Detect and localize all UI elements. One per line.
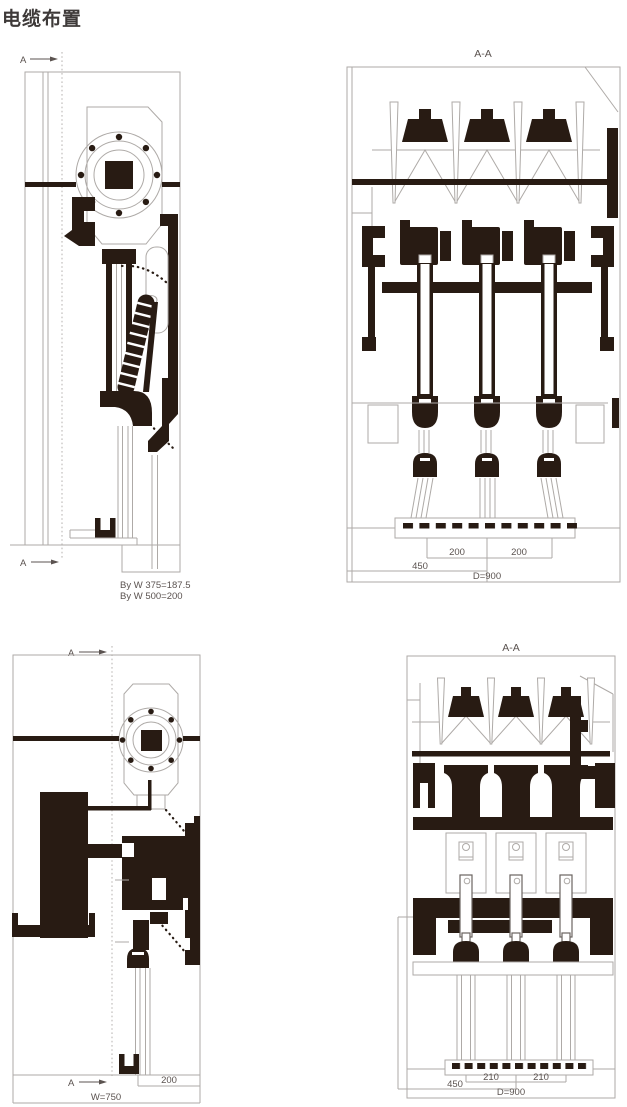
- section-marker-label: A: [68, 648, 75, 659]
- cable-termination: [127, 920, 149, 968]
- dim-depth: D=900: [473, 571, 501, 582]
- section-marker-top: A: [20, 55, 58, 66]
- lead-horizontal: [87, 806, 151, 811]
- contact-block: [524, 220, 575, 428]
- drawing: A: [0, 0, 627, 1107]
- dim-200-right: 200: [511, 547, 527, 558]
- contact-block: [462, 220, 513, 428]
- cable-terminations: [411, 430, 563, 518]
- notes: By W 375=187.5 By W 500=200: [120, 580, 191, 602]
- cable-terminations: [413, 933, 613, 975]
- drive-shaft-bar: [607, 128, 618, 218]
- cable-gland-plate: [347, 518, 620, 538]
- dimension-chain: 200 200 450 D=900: [347, 538, 552, 582]
- section-marker-bottom: A: [68, 1078, 107, 1089]
- phase-pillars: [413, 765, 613, 830]
- pillar-base-bar: [413, 817, 613, 830]
- floor-trench: [122, 545, 180, 572]
- support-box: [576, 405, 604, 443]
- opening-spring: [117, 296, 158, 393]
- busbar-line: [25, 182, 180, 187]
- page: 电缆布置 A: [0, 0, 627, 1107]
- lead-vertical: [148, 780, 152, 810]
- phase-contacts: [400, 220, 575, 428]
- bushing-square: [105, 161, 133, 189]
- dim-200-left: 200: [449, 547, 465, 558]
- insulator-caps: [448, 687, 584, 717]
- section-marker-bottom: A: [20, 558, 59, 569]
- corner-chamfer: [585, 67, 618, 112]
- section-marker-label: A: [20, 558, 27, 569]
- section-marker-label: A: [20, 55, 27, 66]
- dim-450: 450: [412, 561, 428, 572]
- dim-width: W=750: [91, 1092, 121, 1103]
- arrow-icon: [99, 650, 107, 655]
- busbar-line: [13, 736, 200, 741]
- arrow-icon: [50, 57, 58, 62]
- dim-210-left: 210: [483, 1072, 499, 1083]
- bushing-flange: [119, 684, 183, 795]
- section-marker-top: A: [68, 648, 107, 659]
- upper-insulators: [372, 102, 600, 203]
- insulator-caps: [402, 109, 572, 142]
- dim-200: 200: [161, 1075, 177, 1086]
- side-linkage-bar: [168, 214, 178, 378]
- operating-mechanism: [64, 197, 178, 395]
- note-line-2: By W 500=200: [120, 591, 183, 602]
- panel-top-right-section: A-A: [347, 48, 620, 582]
- corner-chamfer: [580, 676, 613, 694]
- cables-to-plate: [411, 478, 563, 518]
- cable-clamp: [70, 518, 137, 545]
- cable-boot: [148, 378, 178, 452]
- contact-block: [400, 220, 451, 428]
- arrow-icon: [99, 1080, 107, 1085]
- dimension-chain: 200 A W=750: [13, 1075, 200, 1103]
- cable-gland-plate: [407, 1060, 615, 1075]
- arrow-icon: [51, 560, 59, 565]
- busbar: [352, 179, 608, 185]
- cable-clamp: [119, 1054, 139, 1074]
- panel-bottom-left-side-view: A: [12, 646, 200, 1103]
- support-box: [368, 405, 398, 443]
- cable-elbow: [100, 391, 152, 426]
- section-label: A-A: [474, 48, 492, 60]
- support-shelf: [413, 962, 613, 975]
- bushing-square: [141, 730, 162, 751]
- dim-depth: D=900: [497, 1087, 525, 1098]
- instrument-box: [12, 792, 95, 938]
- note-line-1: By W 375=187.5: [120, 580, 191, 591]
- dim-450: 450: [447, 1079, 463, 1090]
- section-label: A-A: [502, 642, 520, 654]
- section-marker-label: A: [68, 1078, 75, 1089]
- panel-bottom-right-section: A-A: [398, 642, 615, 1098]
- cables-to-plate: [457, 975, 575, 1060]
- dim-210-right: 210: [533, 1072, 549, 1083]
- panel-top-left-side-view: A: [10, 52, 191, 602]
